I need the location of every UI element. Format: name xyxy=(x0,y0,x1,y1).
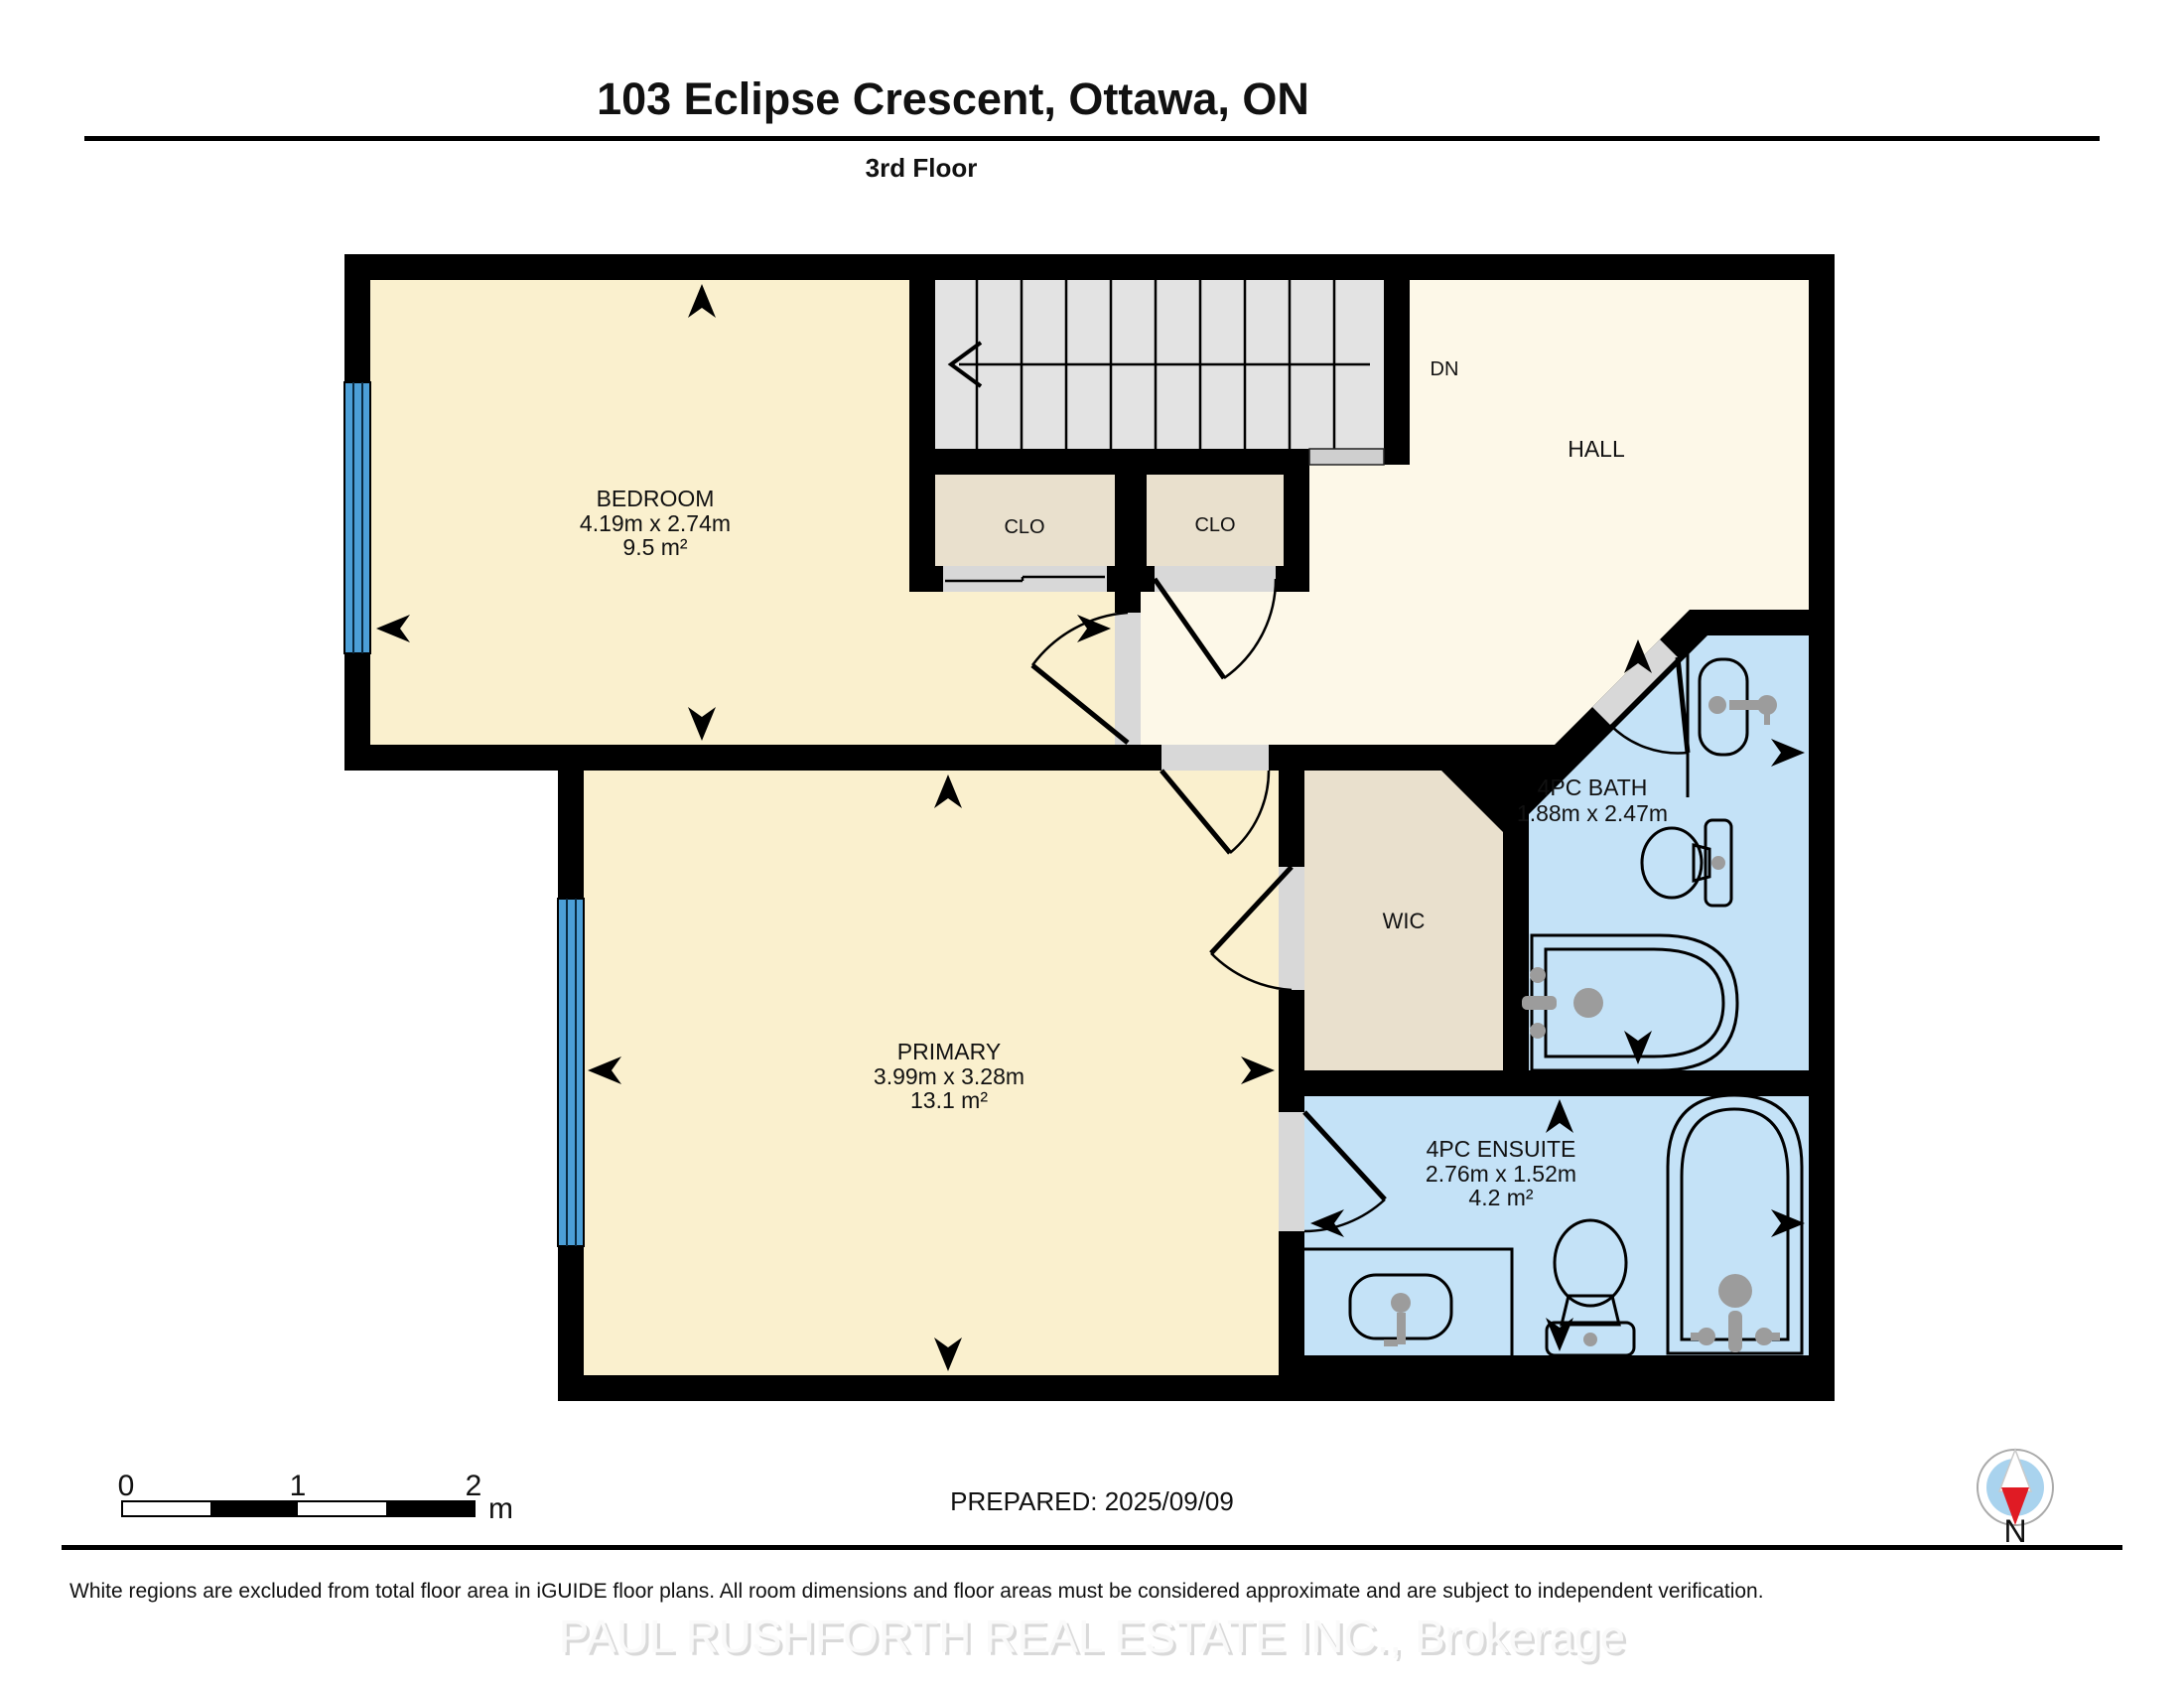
brokerage-watermark: PAUL RUSHFORTH REAL ESTATE INC., Brokera… xyxy=(559,1611,1625,1662)
bedroom-label: BEDROOM xyxy=(597,486,715,511)
stair-landing-edge xyxy=(1309,449,1384,465)
closet1-opening xyxy=(943,566,1107,592)
primary-window xyxy=(558,899,584,1246)
page-title: 103 Eclipse Crescent, Ottawa, ON xyxy=(597,73,1309,124)
ensuite-label: 4PC ENSUITE xyxy=(1427,1136,1576,1162)
bedroom-area: 9.5 m² xyxy=(622,534,688,560)
closet2-opening xyxy=(1155,566,1276,592)
floor-plan-canvas: 103 Eclipse Crescent, Ottawa, ON 3rd Flo… xyxy=(0,0,2184,1688)
ensuite-area: 4.2 m² xyxy=(1468,1185,1534,1210)
bath-label: 4PC BATH xyxy=(1538,774,1648,800)
scale-tick-1: 1 xyxy=(290,1470,307,1502)
bedroom-door-opening xyxy=(1115,613,1141,745)
disclaimer-text: White regions are excluded from total fl… xyxy=(69,1580,1764,1603)
primary-door-opening xyxy=(1161,745,1269,771)
floor-subtitle: 3rd Floor xyxy=(866,153,978,183)
footer-divider xyxy=(62,1545,2122,1550)
wic-door-opening xyxy=(1279,867,1304,990)
scale-tick-2: 2 xyxy=(466,1470,482,1502)
ensuite-door-opening xyxy=(1279,1112,1304,1231)
prepared-date: PREPARED: 2025/09/09 xyxy=(950,1486,1234,1516)
hall-label: HALL xyxy=(1568,436,1625,462)
scale-unit: m xyxy=(488,1492,513,1525)
bath-dimensions: 1.88m x 2.47m xyxy=(1517,800,1668,826)
stairs-dn-label: DN xyxy=(1431,358,1459,380)
ensuite-dimensions: 2.76m x 1.52m xyxy=(1426,1161,1576,1187)
floor-plan-page: 103 Eclipse Crescent, Ottawa, ON 3rd Flo… xyxy=(0,0,2184,1688)
bedroom-window xyxy=(344,382,370,653)
title-divider xyxy=(84,136,2100,141)
primary-dimensions: 3.99m x 3.28m xyxy=(874,1063,1024,1089)
wic-label: WIC xyxy=(1383,909,1426,933)
closet1-label: CLO xyxy=(1004,516,1044,538)
scale-bar: 0 1 2 m xyxy=(118,1470,513,1525)
primary-label: PRIMARY xyxy=(897,1039,1001,1064)
closet2-label: CLO xyxy=(1194,514,1235,536)
primary-area: 13.1 m² xyxy=(910,1087,988,1113)
scale-tick-0: 0 xyxy=(118,1470,135,1502)
bedroom-dimensions: 4.19m x 2.74m xyxy=(580,510,731,536)
compass-north-label: N xyxy=(2003,1513,2026,1549)
